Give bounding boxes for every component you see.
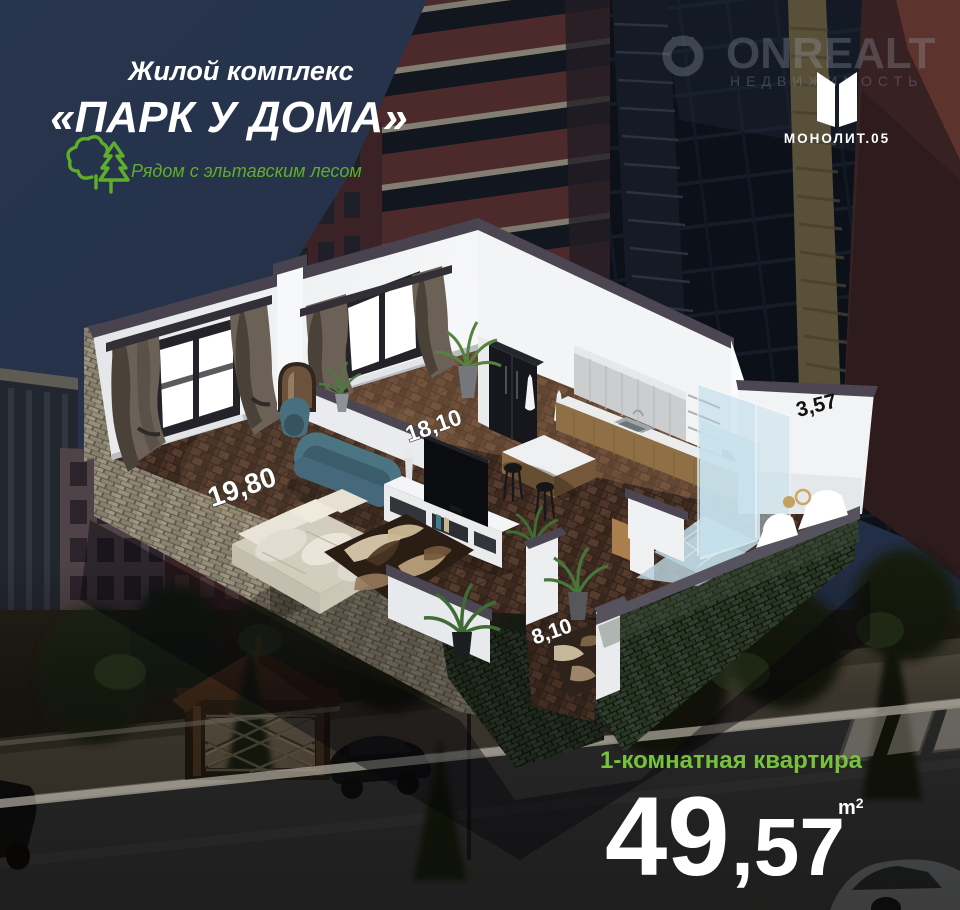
svg-text:«ПАРК У ДОМА»: «ПАРК У ДОМА»: [50, 93, 407, 142]
svg-text:1-комнатная квартира: 1-комнатная квартира: [600, 747, 863, 774]
svg-text:,57: ,57: [731, 802, 845, 893]
svg-text:Жилой комплекс: Жилой комплекс: [126, 56, 353, 86]
svg-text:Рядом с эльтавским лесом: Рядом с эльтавским лесом: [131, 161, 362, 181]
svg-text:49: 49: [605, 774, 730, 899]
svg-text:МОНОЛИТ.05: МОНОЛИТ.05: [784, 131, 890, 146]
svg-text:ONREALT: ONREALT: [726, 29, 936, 78]
